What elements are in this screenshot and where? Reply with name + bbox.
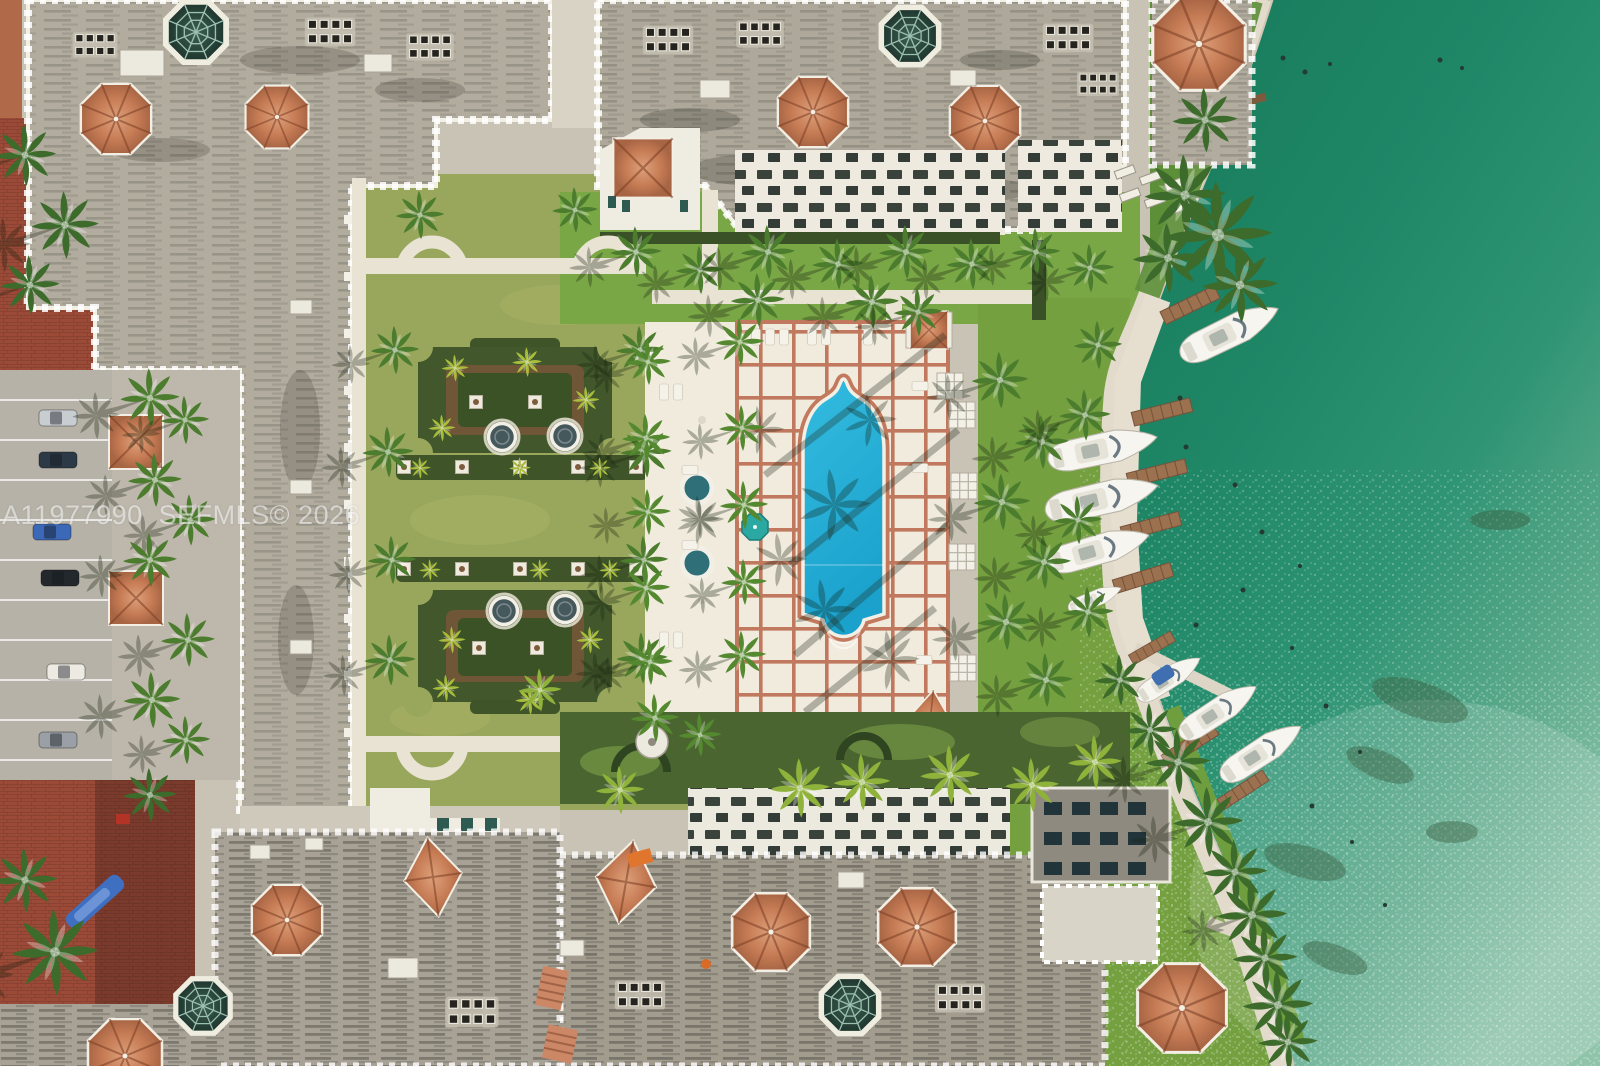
rooftop-ac-units xyxy=(445,997,498,1027)
facade-stepped-white xyxy=(370,788,430,834)
octagonal-terracotta-roof xyxy=(950,86,1020,156)
rooftop-ac-units xyxy=(305,18,355,47)
white-cupola xyxy=(636,726,668,758)
garden-fountain xyxy=(487,594,521,628)
planter xyxy=(529,396,542,409)
facade-hedge xyxy=(600,232,1000,244)
pool-area xyxy=(645,311,977,774)
octagonal-terracotta-roof xyxy=(246,86,309,149)
octagonal-terracotta-roof xyxy=(878,888,956,966)
rooftop-ac-units xyxy=(643,26,693,55)
planter xyxy=(531,642,544,655)
glass-dome xyxy=(819,974,882,1037)
square-hip-roof xyxy=(613,138,672,197)
car xyxy=(47,664,85,680)
spa xyxy=(682,548,712,578)
car xyxy=(39,732,77,748)
car xyxy=(39,452,77,468)
garden-fountain xyxy=(548,419,582,453)
edge-roof-strip xyxy=(0,0,22,118)
glass-dome xyxy=(173,976,233,1036)
octagonal-terracotta-roof-large xyxy=(1153,0,1246,90)
planter xyxy=(470,396,483,409)
rooftop-ac-units xyxy=(406,33,454,60)
rooftop-ac-units xyxy=(935,984,985,1013)
car xyxy=(39,410,77,426)
rooftop-ac-units xyxy=(736,20,784,47)
aerial-photo: A11977990 SEFMLS© 2026 xyxy=(0,0,1600,1066)
red-object xyxy=(116,814,130,824)
planter xyxy=(473,642,486,655)
car xyxy=(41,570,79,586)
aerial-scene xyxy=(0,0,1600,1066)
rooftop-ac-units xyxy=(73,32,118,58)
car xyxy=(33,524,71,540)
octagonal-terracotta-roof xyxy=(778,77,848,147)
octagonal-terracotta-roof xyxy=(252,885,322,955)
rooftop-ac-units xyxy=(1043,24,1093,53)
octagonal-terracotta-roof xyxy=(1138,964,1227,1053)
glass-dome xyxy=(163,0,229,65)
orange-equipment xyxy=(701,959,711,969)
rooftop-ac-units xyxy=(615,981,665,1010)
building-gap-strip xyxy=(552,0,598,128)
garden-fountain xyxy=(548,592,582,626)
rooftop-ac-units xyxy=(1077,72,1119,96)
glass-dome xyxy=(879,5,942,68)
entry-canopy-roof xyxy=(109,571,163,625)
octagonal-terracotta-roof xyxy=(81,84,151,154)
garden-fountain xyxy=(485,420,519,454)
octagonal-terracotta-roof xyxy=(732,893,810,971)
